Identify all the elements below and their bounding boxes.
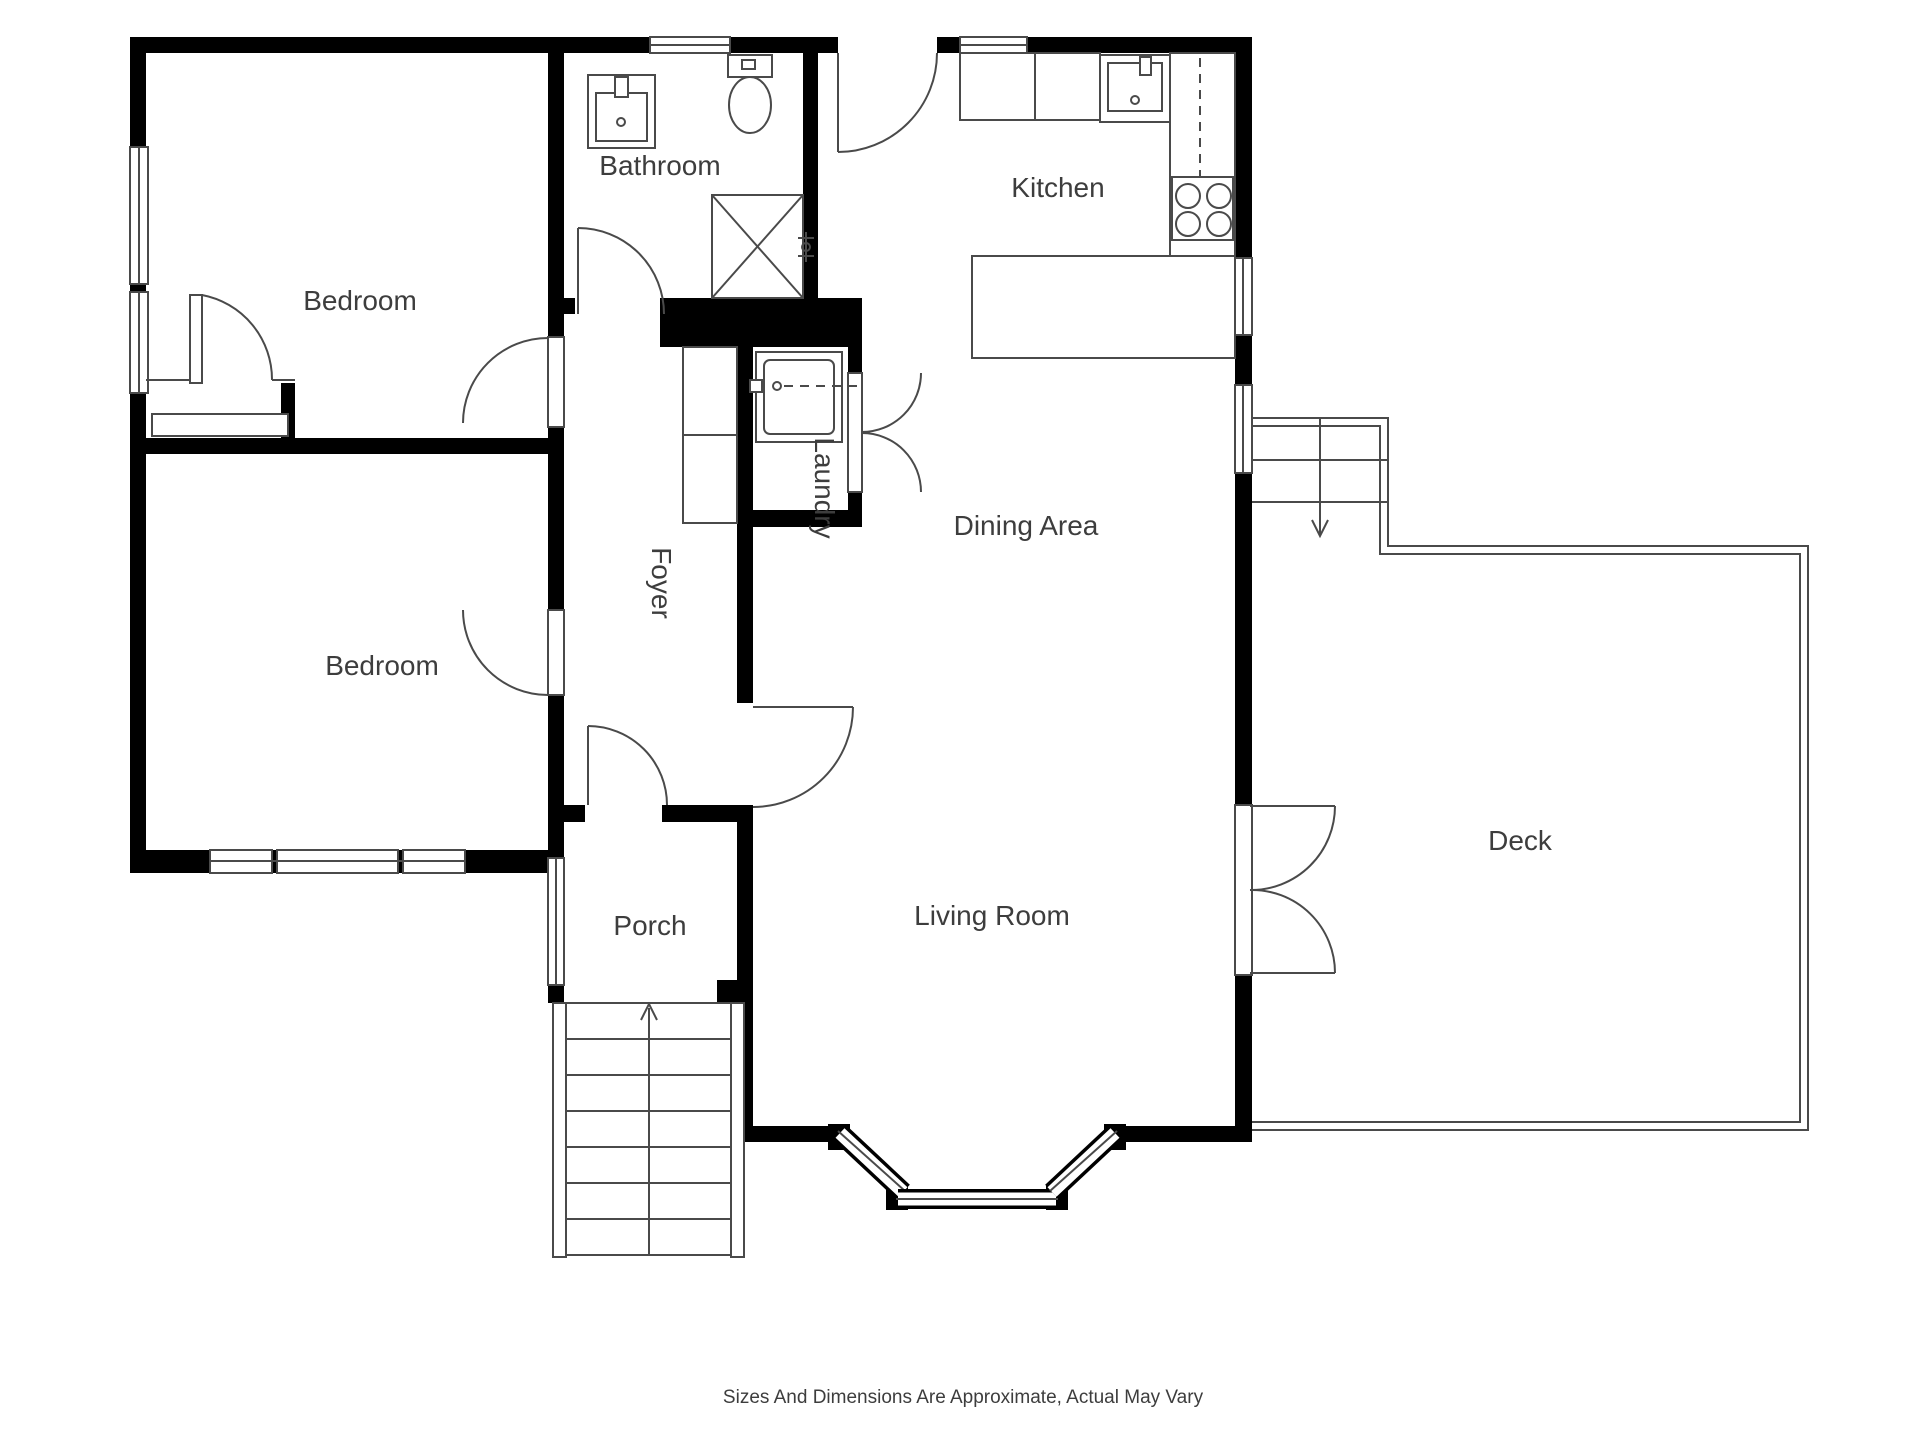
living-room-label: Living Room xyxy=(914,900,1070,931)
dining-area-label: Dining Area xyxy=(954,510,1099,541)
walls xyxy=(130,37,1252,1210)
floor-plan-drawing: Bedroom Bedroom Bathroom Kitchen Dining … xyxy=(0,0,1920,1440)
deck-label: Deck xyxy=(1488,825,1553,856)
porch-label: Porch xyxy=(613,910,686,941)
toilet-icon xyxy=(728,55,772,133)
bathroom-sink-icon xyxy=(588,75,655,148)
stove-icon xyxy=(1172,177,1233,240)
laundry-label: Laundry xyxy=(809,437,840,538)
bathroom-door xyxy=(578,228,664,314)
dining-right-window xyxy=(1235,385,1252,473)
bifold-doors xyxy=(848,373,921,492)
closet-sliding-doors xyxy=(152,414,288,436)
kitchen-top-window xyxy=(960,37,1027,53)
foyer-closets xyxy=(683,347,737,523)
washer-icon xyxy=(750,352,858,442)
bedroom-bottom-label: Bedroom xyxy=(325,650,439,681)
french-doors xyxy=(1235,805,1335,975)
disclaimer-text: Sizes And Dimensions Are Approximate, Ac… xyxy=(723,1387,1204,1408)
foyer-label: Foyer xyxy=(646,547,677,619)
bedroom-closet-door xyxy=(146,295,295,436)
deck-stairs xyxy=(1252,418,1388,536)
porch-left-window xyxy=(548,858,564,985)
bedroom-bottom-windows xyxy=(210,850,465,873)
entry-stairs xyxy=(553,1003,744,1257)
bathroom-top-window xyxy=(650,37,730,53)
floor-plan-page: Bedroom Bedroom Bathroom Kitchen Dining … xyxy=(0,0,1920,1440)
kitchen-entry-door xyxy=(838,53,937,152)
bedroom-top-label: Bedroom xyxy=(303,285,417,316)
deck-outline xyxy=(1252,418,1808,1130)
fixtures xyxy=(588,53,1235,523)
bathroom-label: Bathroom xyxy=(599,150,720,181)
entry-door xyxy=(588,726,667,805)
bay-window xyxy=(838,1131,1117,1199)
kitchen-label: Kitchen xyxy=(1011,172,1104,203)
bedroom-top-door xyxy=(463,337,564,427)
room-labels: Bedroom Bedroom Bathroom Kitchen Dining … xyxy=(303,150,1553,941)
bedroom-left-window xyxy=(130,147,148,393)
bedroom-bottom-door xyxy=(463,610,564,695)
kitchen-right-window xyxy=(1235,258,1252,335)
living-room-door xyxy=(753,707,853,807)
kitchen-sink-icon xyxy=(1100,55,1170,122)
shower-icon xyxy=(712,195,814,298)
kitchen-island xyxy=(972,256,1235,358)
